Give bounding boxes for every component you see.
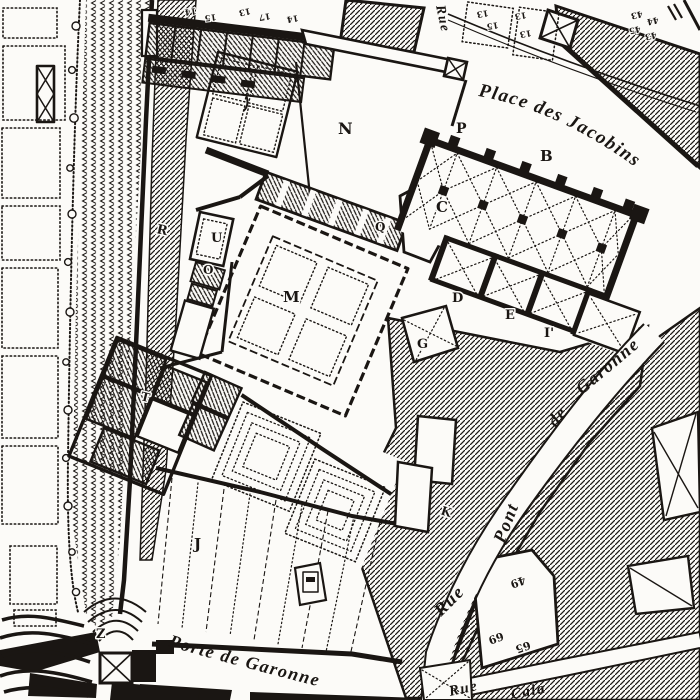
label-U: U xyxy=(211,231,223,246)
label-B: B xyxy=(540,147,553,165)
label-P: P xyxy=(456,121,467,137)
label-E: E xyxy=(505,308,515,323)
plot-number: 13 xyxy=(476,7,489,19)
engraved-city-plan: Place des Jacobins Porte de Garonne Rue … xyxy=(0,0,700,700)
label-Q: Q xyxy=(375,220,385,234)
label-I-prime: I' xyxy=(544,326,554,341)
label-G: G xyxy=(417,337,428,352)
plot-number: 17 xyxy=(258,10,271,22)
garden-building xyxy=(295,563,326,605)
plot-number: 13 xyxy=(514,9,527,21)
label-M: M xyxy=(283,288,300,306)
plot-number: 13 xyxy=(519,27,532,39)
label-D: D xyxy=(452,291,463,306)
plot-number: 15 xyxy=(486,19,499,31)
label-N: N xyxy=(338,119,353,138)
map-canvas: Place des Jacobins Porte de Garonne Rue … xyxy=(0,0,700,700)
label-J: J xyxy=(192,535,201,553)
plot-number: 14 xyxy=(286,12,299,24)
label-O: O xyxy=(203,263,213,277)
label-Z: Z xyxy=(96,627,106,642)
plot-number: 15 xyxy=(204,11,217,23)
plot-number: 14 xyxy=(184,5,197,17)
label-C: C xyxy=(436,198,448,216)
